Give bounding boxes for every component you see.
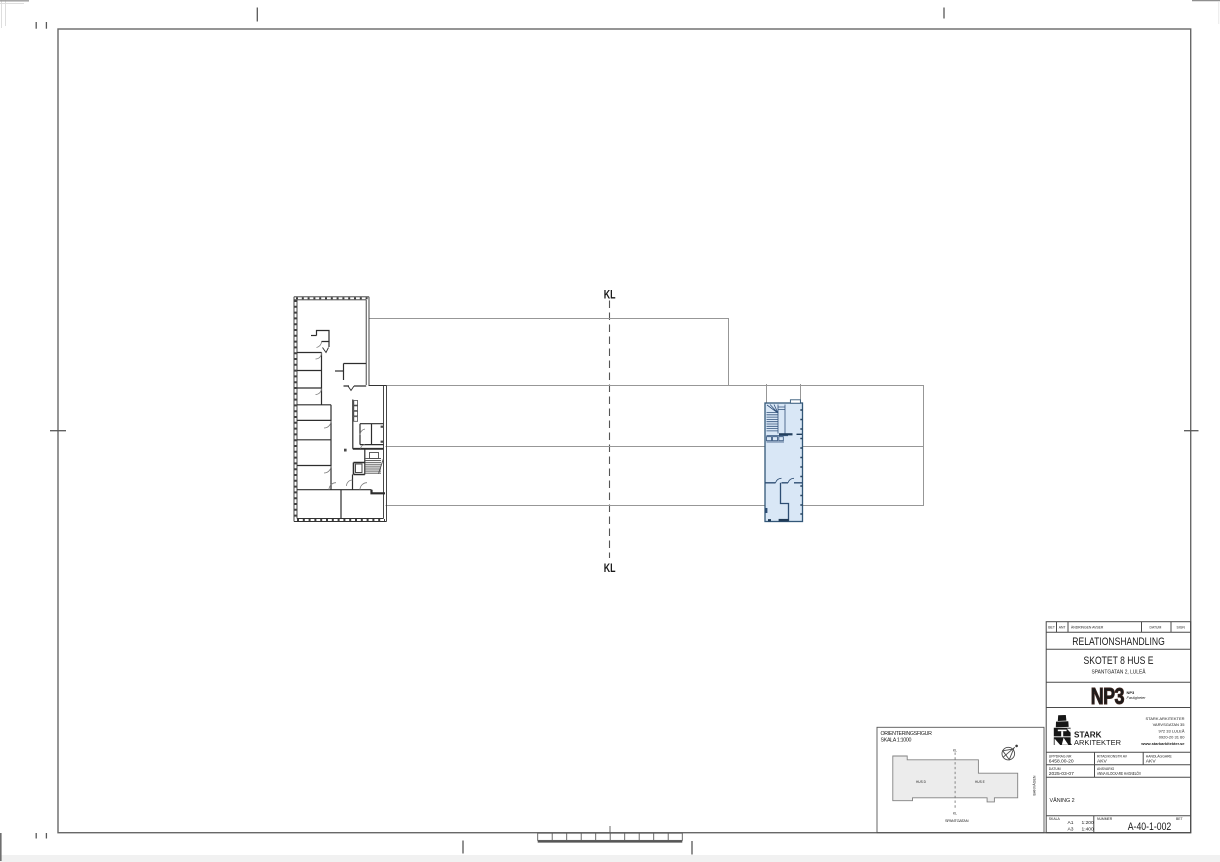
svg-text:NP3: NP3 (1091, 684, 1124, 710)
svg-text:HUS D: HUS D (916, 780, 927, 784)
svg-text:VARVSGATAN 35: VARVSGATAN 35 (1153, 722, 1186, 727)
svg-text:UPPDRAG.NR: UPPDRAG.NR (1049, 754, 1072, 758)
svg-text:0920-20 31 60: 0920-20 31 60 (1159, 735, 1186, 740)
svg-text:A1: A1 (1068, 820, 1074, 826)
svg-text:Fastigheter: Fastigheter (1127, 696, 1147, 700)
svg-text:NUMMER: NUMMER (1097, 817, 1113, 821)
svg-text:AKV: AKV (1097, 758, 1108, 764)
svg-text:KL: KL (604, 563, 616, 575)
svg-text:BANVÄGEN: BANVÄGEN (1033, 775, 1037, 795)
svg-text:ANSVARIG: ANSVARIG (1097, 767, 1115, 771)
svg-text:HUS E: HUS E (975, 780, 985, 784)
svg-text:SPANTGATAN 2, LULEÅ: SPANTGATAN 2, LULEÅ (1092, 668, 1146, 675)
svg-text:ÄNDRINGEN AVSER: ÄNDRINGEN AVSER (1071, 626, 1104, 630)
svg-text:DATUM: DATUM (1150, 626, 1162, 630)
svg-text:VÅNING 2: VÅNING 2 (1050, 797, 1075, 804)
svg-text:ORIENTERINGSFIGUR: ORIENTERINGSFIGUR (881, 731, 933, 737)
svg-text:RELATIONSHANDLING: RELATIONSHANDLING (1072, 636, 1165, 648)
svg-text:972 33 LULEÅ: 972 33 LULEÅ (1158, 728, 1184, 733)
svg-text:SKOTET 8 HUS E: SKOTET 8 HUS E (1084, 655, 1154, 667)
svg-text:SIGN: SIGN (1177, 626, 1186, 630)
svg-text:KL: KL (604, 289, 616, 301)
svg-text:BET: BET (1048, 626, 1055, 630)
svg-text:RITAD/KONSTR AV: RITAD/KONSTR AV (1097, 754, 1128, 758)
svg-text:1:400: 1:400 (1082, 826, 1095, 832)
svg-text:A-40-1-002: A-40-1-002 (1128, 821, 1172, 833)
svg-text:SKALA 1:1000: SKALA 1:1000 (881, 738, 912, 744)
svg-text:DATUM: DATUM (1049, 767, 1061, 771)
svg-text:SKALA: SKALA (1049, 817, 1061, 821)
svg-text:A3: A3 (1068, 826, 1074, 832)
svg-text:2025-03-07: 2025-03-07 (1049, 771, 1074, 777)
svg-text:KL: KL (953, 749, 957, 753)
svg-text:ARKITEKTER: ARKITEKTER (1074, 738, 1121, 747)
svg-text:ANNA KLOCKARE HAGNELÖV: ANNA KLOCKARE HAGNELÖV (1097, 770, 1141, 777)
svg-text:ANT: ANT (1059, 626, 1066, 630)
svg-text:1:200: 1:200 (1082, 820, 1095, 826)
svg-text:KL: KL (953, 812, 957, 816)
svg-text:HANDLÄGGARE: HANDLÄGGARE (1146, 754, 1173, 758)
svg-text:6458.00-20: 6458.00-20 (1049, 758, 1074, 764)
svg-text:STARK ARKITEKTER: STARK ARKITEKTER (1145, 716, 1184, 721)
svg-text:NP3: NP3 (1127, 690, 1136, 695)
svg-text:BET: BET (1176, 817, 1183, 821)
svg-text:SPANTGATAN: SPANTGATAN (945, 818, 969, 823)
svg-text:www.starkarkitekter.se: www.starkarkitekter.se (1140, 741, 1185, 746)
svg-text:AKV: AKV (1146, 758, 1157, 764)
